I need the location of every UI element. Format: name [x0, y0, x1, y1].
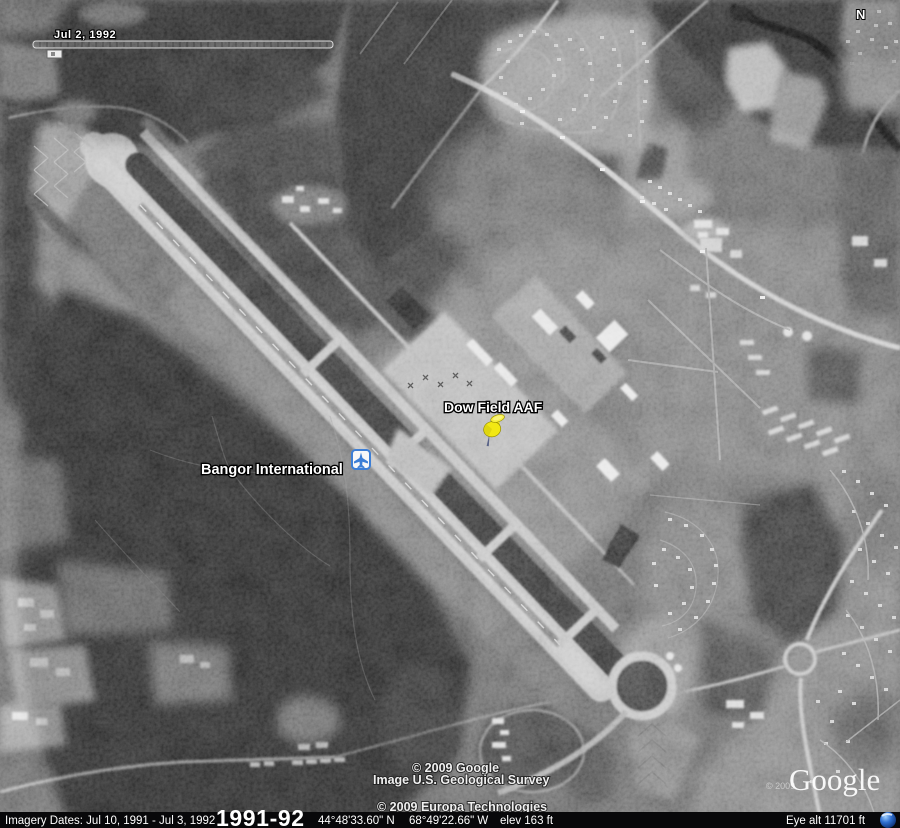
svg-text:elev 163 ft: elev 163 ft	[500, 815, 554, 827]
svg-text:Eye alt 11701 ft: Eye alt 11701 ft	[786, 815, 866, 827]
svg-text:Imagery Dates: Jul 10, 1991 -: Imagery Dates: Jul 10, 1991 - Jul 3, 199…	[5, 815, 215, 827]
svg-text:1991-92: 1991-92	[216, 805, 305, 828]
svg-text:Jul 2, 1992: Jul 2, 1992	[54, 29, 116, 41]
svg-text:Image U.S. Geological Survey: Image U.S. Geological Survey	[373, 773, 550, 787]
svg-text:N: N	[856, 7, 865, 22]
svg-text:Dow Field AAF: Dow Field AAF	[444, 399, 543, 415]
svg-text:© 2009 Europa Technologies: © 2009 Europa Technologies	[377, 800, 547, 814]
svg-text:44°48'33.60" N: 44°48'33.60" N	[318, 815, 395, 827]
svg-text:Google: Google	[789, 762, 880, 797]
svg-text:Bangor International: Bangor International	[201, 462, 343, 478]
svg-text:68°49'22.66" W: 68°49'22.66" W	[409, 815, 488, 827]
